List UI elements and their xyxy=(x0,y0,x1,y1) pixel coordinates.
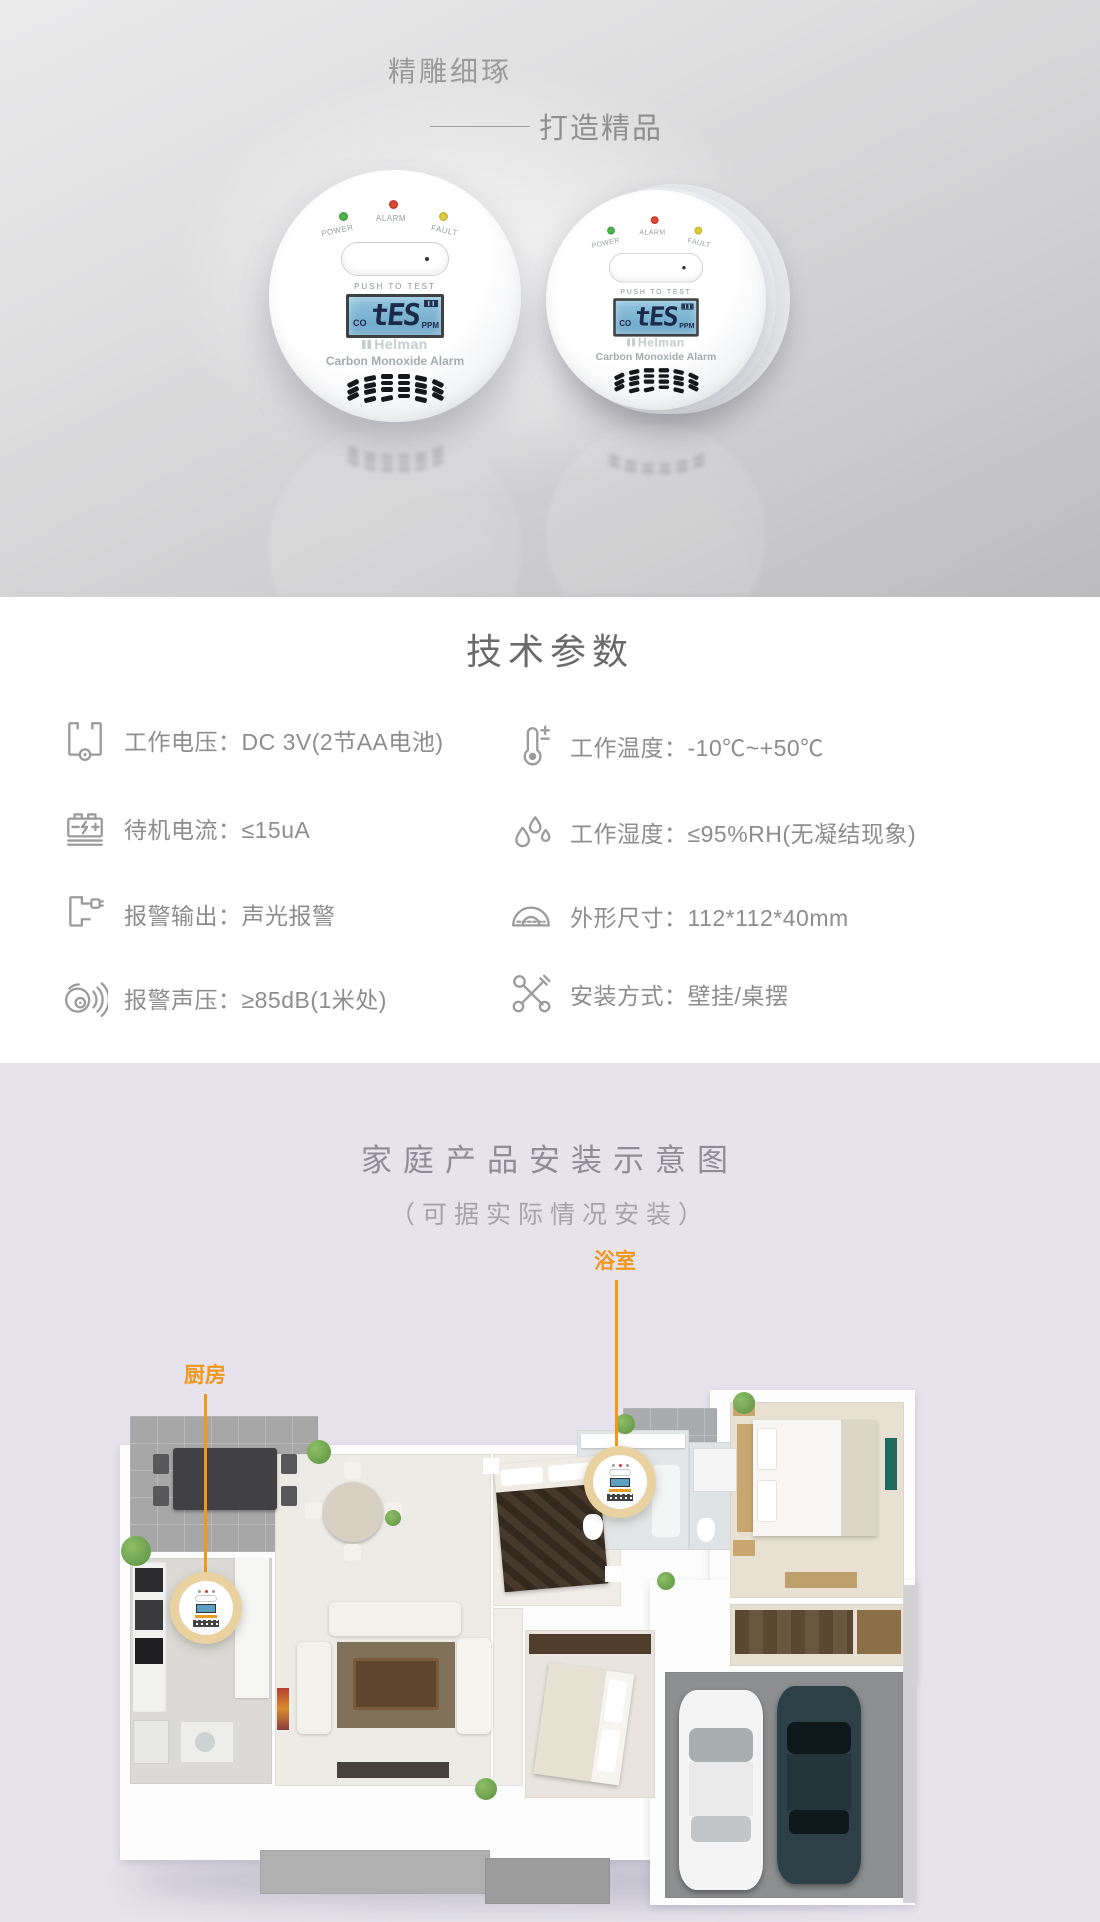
sofa xyxy=(297,1642,331,1734)
nightstand xyxy=(483,1458,499,1474)
spec-dimensions: 外形尺寸：112*112*40mm xyxy=(508,893,849,939)
spec-value: 壁挂/桌摆 xyxy=(688,983,789,1009)
specs-section: 技术参数 工作电压：DC 3V(2节AA电池) 待机电流：≤15uA 报警输出：… xyxy=(0,597,1100,1063)
power-led-label: POWER xyxy=(591,236,621,250)
fault-led-label: FAULT xyxy=(430,223,458,237)
co-alarm-device-left: POWER ALARM FAULT PUSH TO TEST CO tES PP… xyxy=(269,170,521,422)
plant xyxy=(475,1778,497,1800)
patio-table xyxy=(173,1448,277,1510)
power-led xyxy=(607,227,615,235)
fault-led-label: FAULT xyxy=(687,237,712,250)
push-to-test-button xyxy=(341,242,449,276)
plant xyxy=(307,1440,331,1464)
appliance xyxy=(135,1568,163,1592)
pillow xyxy=(757,1480,777,1522)
humidity-icon xyxy=(508,809,554,855)
blanket xyxy=(841,1420,877,1536)
spec-label: 外形尺寸： xyxy=(570,905,688,931)
headboard xyxy=(737,1424,753,1532)
plant xyxy=(121,1536,151,1566)
push-to-test-label: PUSH TO TEST xyxy=(269,282,521,291)
speaker-grille xyxy=(269,372,521,398)
hero-section: 精雕细琢 打造精品 POWER ALARM FAULT PUSH TO TEST… xyxy=(0,0,1100,597)
helman-logo-icon xyxy=(627,338,635,346)
alarm-led xyxy=(389,200,398,209)
brand-name: Helman xyxy=(374,336,428,352)
spec-label: 报警声压： xyxy=(124,987,242,1013)
rear-window xyxy=(691,1816,751,1842)
spec-label: 安装方式： xyxy=(570,983,688,1009)
install-section: 家庭产品安装示意图 （可据实际情况安装） 浴室 厨房 xyxy=(0,1063,1100,1922)
bath-counter xyxy=(581,1434,685,1448)
kitchen-label: 厨房 xyxy=(184,1359,226,1389)
windshield xyxy=(787,1722,851,1754)
chair xyxy=(281,1454,297,1474)
rear-window xyxy=(789,1810,849,1834)
battery-voltage-icon xyxy=(62,717,108,763)
bed xyxy=(534,1663,635,1786)
wall-art xyxy=(277,1688,289,1730)
spec-temperature: 工作温度：-10℃~+50℃ xyxy=(508,723,824,769)
sofa xyxy=(457,1638,491,1734)
alarm-led-label: ALARM xyxy=(376,214,406,223)
spec-value: ≤95%RH(无凝结现象) xyxy=(688,821,917,847)
kitchen-device-callout xyxy=(170,1572,242,1644)
floor-plan xyxy=(85,1390,915,1915)
spec-value: 声光报警 xyxy=(242,903,336,929)
shelf xyxy=(857,1610,901,1654)
spec-label: 工作电压： xyxy=(124,729,242,755)
spec-value: 112*112*40mm xyxy=(688,905,849,931)
sound-pressure-icon xyxy=(62,975,108,1021)
dresser xyxy=(785,1572,857,1588)
spec-label: 工作温度： xyxy=(570,735,688,761)
bathroom-pointer-line xyxy=(615,1280,618,1446)
hero-heading: 精雕细琢 打造精品 xyxy=(388,50,663,147)
fridge xyxy=(133,1720,169,1764)
walkway xyxy=(485,1858,610,1904)
coffee-table xyxy=(353,1658,439,1710)
lcd-display: CO tES PPM xyxy=(613,298,699,336)
chair xyxy=(344,1544,361,1561)
driveway xyxy=(903,1585,917,1903)
pillow xyxy=(757,1428,777,1470)
chair xyxy=(344,1462,361,1479)
install-title: 家庭产品安装示意图 xyxy=(0,1135,1100,1180)
power-led xyxy=(339,212,348,221)
lcd-ppm-label: PPM xyxy=(422,321,439,330)
battery-icon xyxy=(681,303,693,309)
plant xyxy=(385,1510,401,1526)
spec-label: 报警输出： xyxy=(124,903,242,929)
plant xyxy=(615,1414,635,1434)
fault-led xyxy=(439,212,448,221)
brand-name: Helman xyxy=(638,335,685,349)
wardrobe xyxy=(529,1634,651,1654)
sofa xyxy=(329,1602,461,1636)
install-subtitle: （可据实际情况安装） xyxy=(0,1195,1100,1231)
spec-standby-current: 待机电流：≤15uA xyxy=(62,805,310,851)
product-name: Carbon Monoxide Alarm xyxy=(269,354,521,368)
bathroom-device-callout xyxy=(584,1446,656,1518)
lcd-ppm-label: PPM xyxy=(679,322,694,330)
car-white xyxy=(679,1690,763,1890)
push-to-test-button xyxy=(609,253,703,283)
toilet xyxy=(583,1514,603,1540)
toilet xyxy=(697,1518,715,1542)
nightstand xyxy=(605,1566,621,1582)
power-led-label: POWER xyxy=(320,223,354,239)
kitchen-pointer-line xyxy=(204,1394,207,1572)
tv-console xyxy=(337,1762,449,1778)
device-reflection xyxy=(0,424,1100,594)
kitchen-island xyxy=(235,1558,269,1698)
dining-table xyxy=(323,1482,383,1542)
spec-value: ≥85dB(1米处) xyxy=(242,987,387,1013)
chair xyxy=(281,1486,297,1506)
specs-title: 技术参数 xyxy=(0,623,1100,675)
lcd-display: CO tES PPM xyxy=(346,294,444,338)
spec-value: -10℃~+50℃ xyxy=(688,735,824,761)
spec-humidity: 工作湿度：≤95%RH(无凝结现象) xyxy=(508,809,916,855)
cabinet xyxy=(693,1448,737,1492)
appliance xyxy=(135,1600,163,1630)
sink xyxy=(195,1732,215,1752)
plant xyxy=(733,1392,755,1414)
chair xyxy=(153,1454,169,1474)
car-roof xyxy=(787,1754,851,1810)
standby-current-icon xyxy=(62,805,108,851)
hallway xyxy=(493,1608,523,1786)
spec-install-method: 安装方式：壁挂/桌摆 xyxy=(508,971,788,1017)
wardrobe xyxy=(735,1610,853,1654)
chair xyxy=(153,1486,169,1506)
wall-art xyxy=(885,1438,897,1490)
chair xyxy=(305,1502,322,1519)
helman-logo-icon xyxy=(362,340,371,349)
windshield xyxy=(689,1728,753,1762)
install-method-icon xyxy=(508,971,554,1017)
spec-value: DC 3V(2节AA电池) xyxy=(242,729,444,755)
hero-title: 精雕细琢 xyxy=(388,50,663,90)
spec-label: 工作湿度： xyxy=(570,821,688,847)
mini-co-alarm xyxy=(593,1455,647,1509)
mini-co-alarm xyxy=(179,1581,233,1635)
spec-value: ≤15uA xyxy=(242,817,311,843)
bathroom-label: 浴室 xyxy=(594,1245,636,1275)
spec-voltage: 工作电压：DC 3V(2节AA电池) xyxy=(62,717,444,763)
button-dot xyxy=(425,257,429,261)
spec-alarm-output: 报警输出：声光报警 xyxy=(62,891,336,937)
push-to-test-label: PUSH TO TEST xyxy=(546,288,766,296)
alarm-output-icon xyxy=(62,891,108,937)
fault-led xyxy=(694,227,702,235)
product-detail-page: 精雕细琢 打造精品 POWER ALARM FAULT PUSH TO TEST… xyxy=(0,0,1100,1922)
thermometer-icon xyxy=(508,723,554,769)
alarm-led xyxy=(651,216,659,224)
cooktop xyxy=(135,1638,163,1664)
car-roof xyxy=(689,1762,753,1816)
dimensions-icon xyxy=(508,893,554,939)
spec-sound-pressure: 报警声压：≥85dB(1米处) xyxy=(62,975,387,1021)
plant xyxy=(657,1572,675,1590)
product-name: Carbon Monoxide Alarm xyxy=(546,351,766,363)
car-dark xyxy=(777,1686,861,1884)
battery-icon xyxy=(424,300,438,307)
nightstand xyxy=(733,1540,755,1556)
alarm-led-label: ALARM xyxy=(639,228,665,236)
speaker-grille xyxy=(546,366,766,389)
spec-label: 待机电流： xyxy=(124,817,242,843)
co-alarm-device-right: POWER ALARM FAULT PUSH TO TEST CO tES PP… xyxy=(546,190,766,410)
hero-subtitle: 打造精品 xyxy=(539,105,663,147)
button-dot xyxy=(682,266,685,269)
walkway xyxy=(260,1850,490,1894)
divider-line xyxy=(430,126,530,127)
